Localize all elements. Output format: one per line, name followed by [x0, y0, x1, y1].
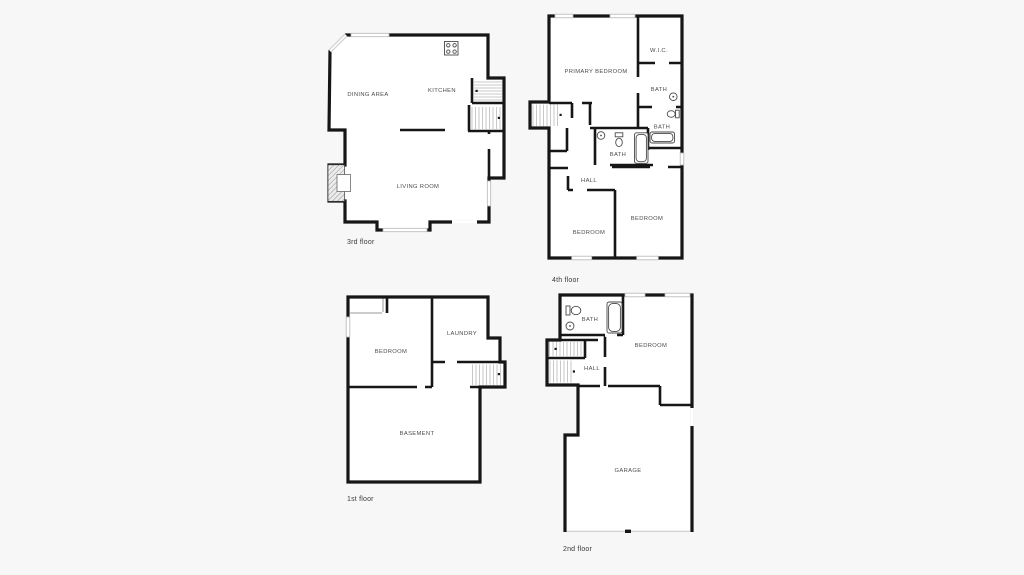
windows: [346, 317, 350, 337]
bathtub-icon: [607, 302, 622, 333]
floorplan-sheet: DINING AREA KITCHEN LIVING ROOM 3rd floo…: [0, 0, 1024, 575]
room-label-bedroom: BEDROOM: [375, 349, 407, 355]
floorplan-1st-floor: BEDROOM LAUNDRY BASEMENT: [345, 293, 510, 493]
room-label-bedroom: BEDROOM: [635, 343, 667, 349]
room-label-living-room: LIVING ROOM: [397, 184, 440, 190]
room-label-bath-3: BATH: [610, 152, 626, 158]
room-label-laundry: LAUNDRY: [447, 331, 477, 337]
floor-label-4th: 4th floor: [552, 277, 579, 284]
room-label-bath-1: BATH: [651, 87, 667, 93]
room-label-bath-2: BATH: [654, 125, 670, 131]
room-label-garage: GARAGE: [615, 468, 642, 474]
sink-icon: [670, 93, 678, 101]
toilet-icon: [667, 110, 679, 118]
room-label-bath: BATH: [582, 317, 598, 323]
room-label-hall: HALL: [584, 366, 600, 372]
floorplan-4th-floor: PRIMARY BEDROOM W.I.C. BATH BATH BATH HA…: [528, 14, 688, 262]
stove-icon: [445, 42, 459, 56]
floorplan-2nd-floor: BATH HALL BEDROOM GARAGE: [545, 290, 705, 545]
room-label-wic: W.I.C.: [650, 48, 668, 54]
toilet-icon: [615, 133, 623, 147]
toilet-icon: [566, 306, 581, 315]
room-label-bedroom-left: BEDROOM: [573, 230, 605, 236]
room-label-hall: HALL: [581, 178, 597, 184]
floor-area: [329, 35, 504, 230]
room-label-basement: BASEMENT: [400, 431, 435, 437]
room-label-dining-area: DINING AREA: [347, 92, 388, 98]
bathtub-icon: [650, 132, 675, 143]
floor-label-1st: 1st floor: [347, 496, 374, 503]
room-label-primary-bedroom: PRIMARY BEDROOM: [564, 69, 627, 75]
room-label-bedroom-right: BEDROOM: [631, 216, 663, 222]
floorplan-3rd-floor: DINING AREA KITCHEN LIVING ROOM: [325, 30, 507, 235]
room-label-kitchen: KITCHEN: [428, 88, 456, 94]
floor-label-3rd: 3rd floor: [347, 239, 374, 246]
floor-label-2nd: 2nd floor: [563, 546, 592, 553]
bathtub-icon: [635, 133, 649, 164]
sink-icon: [566, 322, 574, 330]
sink-icon: [597, 132, 605, 140]
